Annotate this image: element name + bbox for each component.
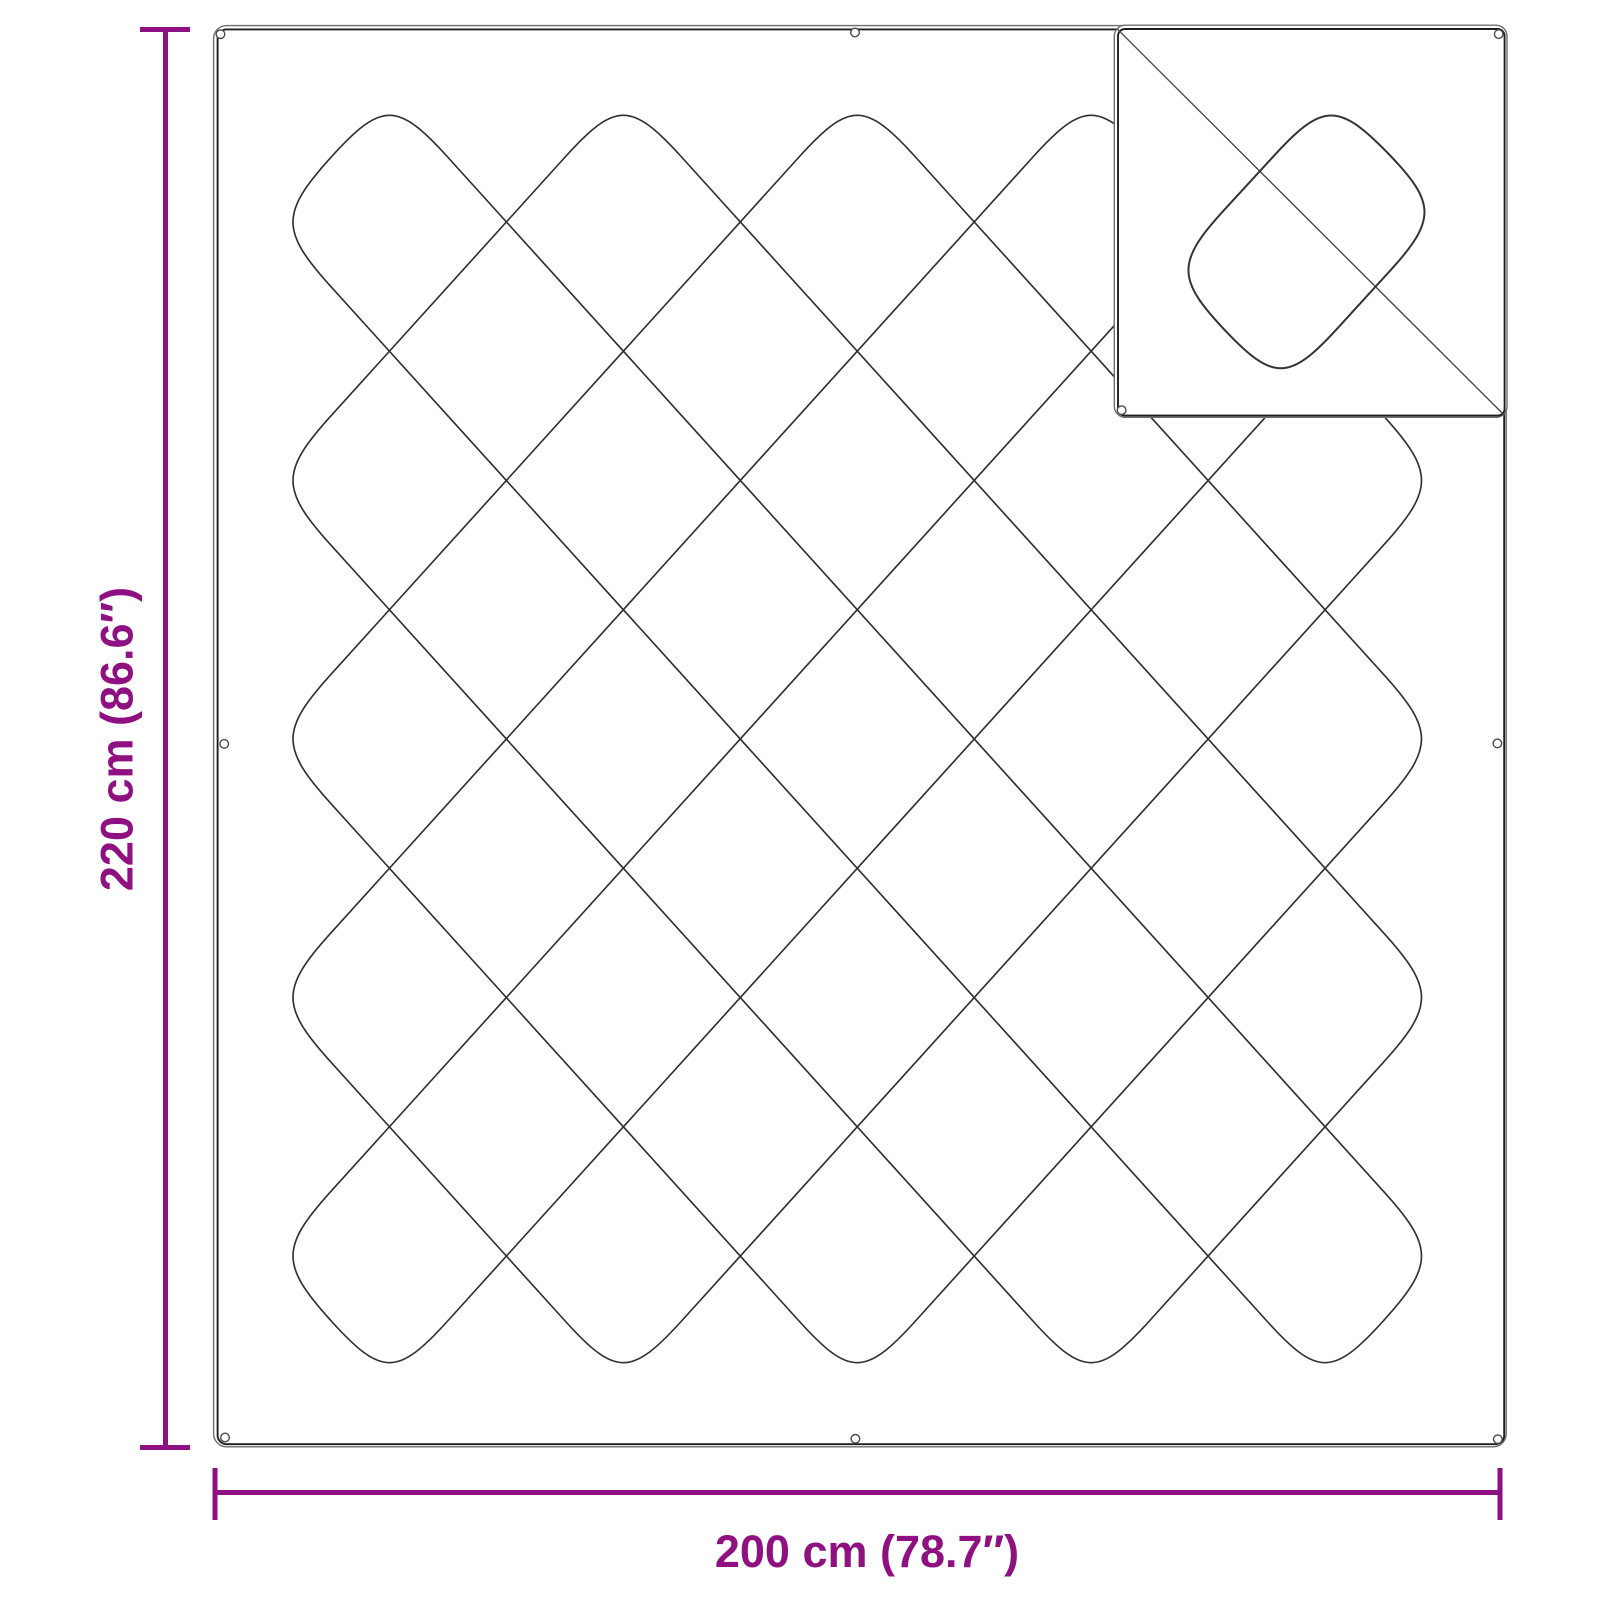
svg-text:220 cm (86.6″): 220 cm (86.6″): [92, 587, 143, 891]
svg-text:200 cm (78.7″): 200 cm (78.7″): [715, 1526, 1019, 1577]
